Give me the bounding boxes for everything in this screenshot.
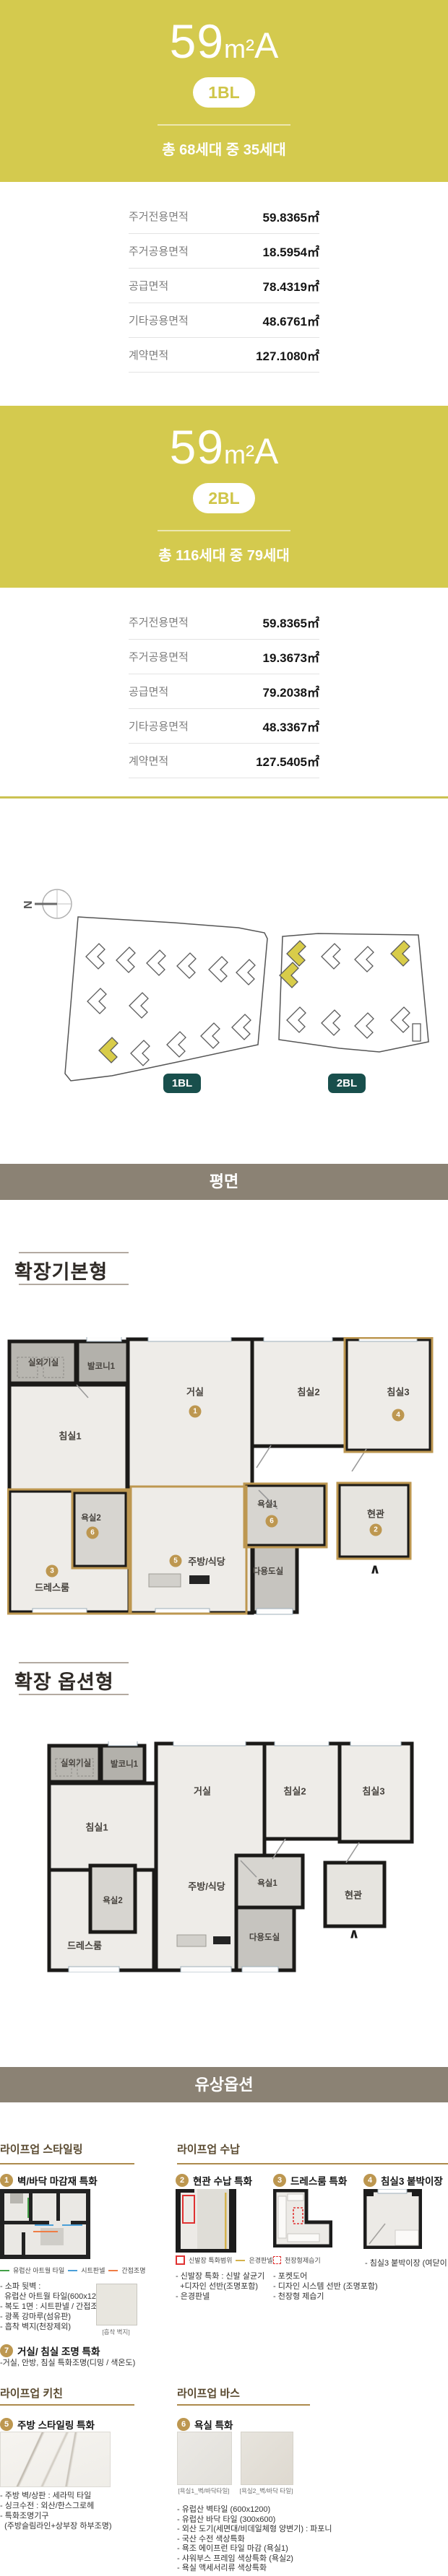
- option4-plan-image: [363, 2189, 422, 2249]
- room-bed3: 침실3: [362, 1784, 384, 1798]
- plan-section-band: 평면: [0, 1164, 448, 1200]
- room-bath1: 욕실1: [257, 1877, 277, 1889]
- table-row: 공급면적78.4319㎡: [129, 269, 319, 303]
- room-ac: 실외기실: [28, 1357, 59, 1368]
- room-dress: 드레스룸: [67, 1938, 102, 1952]
- option2-legend: 신발장 특화범위 은경판넬: [176, 2255, 273, 2265]
- option7-label: 거실/ 침실 조명 특화: [17, 2344, 100, 2358]
- bath1-tile-caption: [욕실1_벽/바닥타일]: [172, 2486, 236, 2495]
- row-label: 주거공용면적: [129, 243, 189, 258]
- option3-plan-image: [273, 2189, 332, 2248]
- option6-number: 6: [177, 2418, 190, 2431]
- floorplan-option: 실외기실 발코니1 거실 침실2 침실3 침실1 욕실2 드레스룸 주방/식당 …: [47, 1741, 414, 1972]
- kitchen-underline: [0, 2404, 134, 2406]
- option4-number: 4: [363, 2174, 376, 2187]
- option4-bullets: - 침실3 붙박이장 (여닫이 도어): [365, 2258, 448, 2268]
- room-living: 거실: [186, 1385, 204, 1398]
- legend-gold-line: [236, 2260, 245, 2261]
- site-badge-2bl: 2BL: [328, 1074, 366, 1093]
- ceramic-tile-image: [0, 2432, 111, 2487]
- option5-bullets: - 주방 벽/상판 : 세라믹 타일 - 싱크수전 : 외산/한스그로헤 - 특…: [0, 2491, 111, 2531]
- unit2-households: 총 116세대 중 79세대: [0, 544, 448, 565]
- option-item4-title: 4 침실3 붙박이장: [363, 2173, 443, 2188]
- row-value: 127.1080㎡: [256, 346, 319, 364]
- title-rule-top: [19, 1662, 129, 1663]
- table-row: 공급면적79.2038㎡: [129, 674, 319, 709]
- unit-info-page: 59m²A 1BL 총 68세대 중 35세대 주거전용면적59.8365㎡ 주…: [0, 0, 448, 2576]
- unit1-divider: [158, 124, 290, 126]
- room-bath2: 욕실2: [103, 1894, 123, 1906]
- bath-underline: [177, 2404, 310, 2406]
- site-badge-1bl: 1BL: [163, 1074, 201, 1093]
- legend-label: 천장형제습기: [285, 2255, 321, 2265]
- table-row: 계약면적127.5405㎡: [129, 744, 319, 778]
- option2-number: 2: [176, 2174, 189, 2187]
- option5-number: 5: [0, 2418, 13, 2431]
- legend-label: 유럽산 아트월 타일: [13, 2266, 64, 2275]
- room-bed2: 침실2: [283, 1784, 306, 1798]
- option2-bullets: - 신발장 특화 : 신발 살균기 +디자인 선반(조명포함) - 은경판넬: [176, 2271, 264, 2302]
- table-row: 주거공용면적19.3673㎡: [129, 640, 319, 674]
- option-number-entry: 2: [370, 1524, 382, 1536]
- entry-direction-arrow: ∧: [369, 1562, 380, 1578]
- unit2-title: 59m²A: [0, 423, 448, 471]
- room-living: 거실: [194, 1784, 211, 1798]
- option6-label: 욕실 특화: [194, 2417, 233, 2432]
- room-kitchen: 주방/식당: [188, 1554, 225, 1568]
- option1-number: 1: [0, 2174, 13, 2187]
- room-utility: 다용도실: [249, 1931, 280, 1943]
- legend-blue-line: [68, 2270, 77, 2271]
- unit2-area-number: 59: [170, 420, 224, 474]
- bath-header: 라이프업 바스: [177, 2385, 240, 2401]
- room-balcony: 발코니1: [111, 1758, 138, 1770]
- option-item5-title: 5 주방 스타일링 특화: [0, 2417, 95, 2432]
- row-label: 공급면적: [129, 278, 168, 293]
- styling-header: 라이프업 스타일링: [0, 2141, 83, 2157]
- option-item7-title: 7 거실/ 침실 조명 특화: [0, 2344, 100, 2358]
- room-bed3: 침실3: [387, 1385, 409, 1398]
- table-row: 주거공용면적18.5954㎡: [129, 234, 319, 269]
- row-label: 계약면적: [129, 347, 168, 362]
- row-value: 48.6761㎡: [263, 311, 319, 329]
- unit1-block-badge: 1BL: [193, 77, 255, 108]
- title-rule-bottom: [19, 1284, 129, 1285]
- legend-orange-line: [108, 2270, 118, 2271]
- row-label: 주거전용면적: [129, 614, 189, 630]
- option1-bullets: - 소파 뒷벽 : 유럽산 아트월 타일(600x1200) - 복도 1면 :…: [0, 2281, 108, 2332]
- table-row: 주거전용면적59.8365㎡: [129, 605, 319, 640]
- floorplan-basic: 실외기실 발코니1 거실 1 침실2 침실3 4 침실1 욕실2 6 3 드레스…: [7, 1337, 434, 1615]
- legend-red-box: [176, 2255, 185, 2265]
- room-entry: 현관: [345, 1888, 362, 1902]
- table-row: 기타공용면적48.3367㎡: [129, 709, 319, 744]
- table-row: 주거전용면적59.8365㎡: [129, 199, 319, 234]
- unit1-title: 59m²A: [0, 17, 448, 65]
- option-number-living: 1: [189, 1406, 202, 1418]
- row-value: 18.5954㎡: [263, 242, 319, 260]
- row-label: 주거전용면적: [129, 209, 189, 224]
- unit1-type: A: [254, 25, 278, 66]
- option-number-bed3: 4: [392, 1409, 405, 1422]
- option2-plan-image: [176, 2189, 236, 2253]
- unit2-block-badge: 2BL: [193, 483, 255, 513]
- unit2-area-unit: m²: [224, 440, 254, 469]
- unit2-header: 59m²A 2BL 총 116세대 중 79세대: [0, 406, 448, 588]
- wallpaper-swatch-caption: [흡착 벽지]: [96, 2328, 136, 2336]
- unit2-type: A: [254, 431, 278, 471]
- title-rule-bottom: [19, 1694, 129, 1695]
- row-label: 공급면적: [129, 684, 168, 699]
- unit1-area-unit: m²: [224, 34, 254, 64]
- styling-underline: [0, 2163, 134, 2164]
- storage-underline: [177, 2163, 448, 2164]
- option5-label: 주방 스타일링 특화: [17, 2417, 95, 2432]
- unit1-area-number: 59: [170, 14, 224, 68]
- option3-number: 3: [273, 2174, 286, 2187]
- room-bath1: 욕실1: [257, 1498, 277, 1510]
- option-item2-title: 2 현관 수납 특화: [176, 2173, 252, 2188]
- row-label: 기타공용면적: [129, 313, 189, 328]
- legend-label: 신발장 특화범위: [189, 2255, 232, 2265]
- option1-legend: 유럽산 아트월 타일 시트판넬 간접조명: [0, 2266, 146, 2275]
- option7-bullets: -거실, 안방, 침실 특화조명(디밍 / 색온도): [0, 2358, 135, 2368]
- room-balcony: 발코니1: [87, 1360, 115, 1372]
- row-value: 19.3673㎡: [263, 648, 319, 666]
- storage-header: 라이프업 수납: [177, 2141, 240, 2157]
- room-bed2: 침실2: [297, 1385, 319, 1398]
- entry-direction-arrow: ∧: [348, 1926, 359, 1943]
- row-value: 78.4319㎡: [263, 277, 319, 295]
- title-rule-top: [19, 1252, 129, 1253]
- row-label: 기타공용면적: [129, 718, 189, 734]
- north-label: N: [22, 895, 35, 909]
- bath2-tile-image: [241, 2432, 293, 2485]
- kitchen-header: 라이프업 키친: [0, 2385, 63, 2401]
- bath2-tile-caption: [욕실2_벽/바닥 타일]: [236, 2486, 297, 2495]
- floorplan1-title: 확장기본형: [14, 1256, 108, 1284]
- option3-bullets: - 포켓도어 - 디자인 시스템 선반 (조명포함) - 천장형 제습기: [273, 2271, 378, 2302]
- row-value: 59.8365㎡: [263, 613, 319, 631]
- legend-label: 은경판넬: [249, 2255, 272, 2265]
- option-item1-title: 1 벽/바닥 마감재 특화: [0, 2173, 98, 2188]
- unit1-header: 59m²A 1BL 총 68세대 중 35세대: [0, 0, 448, 182]
- unit2-divider: [158, 530, 290, 531]
- row-value: 48.3367㎡: [263, 717, 319, 735]
- unit1-area-table: 주거전용면적59.8365㎡ 주거공용면적18.5954㎡ 공급면적78.431…: [129, 199, 319, 373]
- row-label: 계약면적: [129, 753, 168, 768]
- row-value: 127.5405㎡: [256, 752, 319, 770]
- legend-red-dashed-box: [273, 2256, 281, 2264]
- room-bath2: 욕실2: [81, 1512, 101, 1523]
- option-item3-title: 3 드레스룸 특화: [273, 2173, 347, 2188]
- row-label: 주거공용면적: [129, 649, 189, 664]
- room-utility: 다용도실: [253, 1565, 283, 1577]
- option3-legend: 천장형제습기: [273, 2255, 321, 2265]
- option4-label: 침실3 붙박이장: [381, 2173, 443, 2188]
- site-plan-map: [0, 799, 448, 1102]
- wallpaper-swatch-image: [96, 2284, 137, 2325]
- option3-label: 드레스룸 특화: [290, 2173, 347, 2188]
- table-row: 계약면적127.1080㎡: [129, 338, 319, 373]
- bath1-tile-image: [177, 2432, 232, 2485]
- option-number-dress: 3: [46, 1565, 59, 1578]
- option-number-bath1: 6: [266, 1515, 278, 1528]
- floorplan2-title: 확장 옵션형: [14, 1666, 114, 1694]
- option1-label: 벽/바닥 마감재 특화: [17, 2173, 98, 2188]
- room-dress: 드레스룸: [35, 1580, 69, 1594]
- option6-bullets: - 유럽산 벽타일 (600x1200) - 유럽산 바닥 타일 (300x60…: [177, 2505, 332, 2574]
- legend-label: 시트판넬: [81, 2266, 105, 2275]
- paid-options-band: 유상옵션: [0, 2067, 448, 2102]
- room-entry: 현관: [367, 1507, 384, 1520]
- option-item6-title: 6 욕실 특화: [177, 2417, 233, 2432]
- option1-plan-image: [0, 2189, 90, 2259]
- option2-label: 현관 수납 특화: [193, 2173, 252, 2188]
- unit1-households: 총 68세대 중 35세대: [0, 138, 448, 159]
- option-number-kitchen: 5: [170, 1555, 182, 1567]
- room-kitchen: 주방/식당: [188, 1879, 225, 1893]
- legend-label: 간접조명: [121, 2266, 145, 2275]
- option7-number: 7: [0, 2344, 13, 2357]
- option-number-bath2: 6: [87, 1527, 99, 1539]
- row-value: 59.8365㎡: [263, 207, 319, 225]
- legend-green-line: [0, 2270, 9, 2271]
- room-bed1: 침실1: [85, 1820, 108, 1834]
- room-bed1: 침실1: [59, 1429, 81, 1443]
- unit2-area-table: 주거전용면적59.8365㎡ 주거공용면적19.3673㎡ 공급면적79.203…: [129, 605, 319, 778]
- room-ac: 실외기실: [61, 1757, 91, 1769]
- row-value: 79.2038㎡: [263, 682, 319, 700]
- table-row: 기타공용면적48.6761㎡: [129, 303, 319, 338]
